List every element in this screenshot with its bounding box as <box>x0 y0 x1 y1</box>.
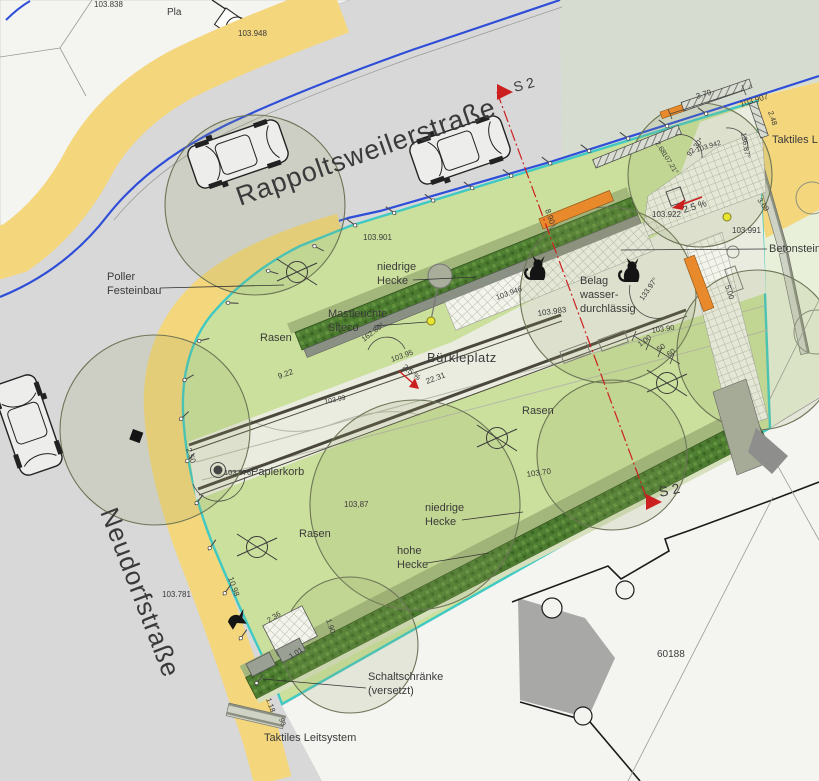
label-poller-line2: Festeinbau <box>107 285 161 297</box>
lawn-label-2: Rasen <box>522 405 554 417</box>
mast-light-1 <box>427 317 435 325</box>
building-notch-circle-3 <box>574 707 592 725</box>
site-plan-canvas: Rappoltsweilerstraße Neudorfstraße Bürkl… <box>0 0 819 781</box>
label-hohe-hecke-line1: hohe <box>397 545 421 557</box>
elev-103901: 103.901 <box>363 233 392 242</box>
label-hohe-hecke-line2: Hecke <box>397 559 428 571</box>
parcel-number: 60188 <box>657 649 685 660</box>
label-schaltschraenke-line1: Schaltschränke <box>368 671 443 683</box>
label-poller-line1: Poller <box>107 271 135 283</box>
building-notch-circle-2 <box>616 581 634 599</box>
label-papierkorb: Papierkorb <box>251 466 304 478</box>
lawn-label-3: Rasen <box>299 528 331 540</box>
building-notch-circle-1 <box>542 598 562 618</box>
elev-10387: 103,87 <box>344 500 369 509</box>
papierkorb-symbol <box>214 466 223 475</box>
elev-103781: 103.781 <box>162 590 191 599</box>
label-betonstein-right: Betonsteinp <box>769 243 819 255</box>
label-belag-line3: durchlässig <box>580 303 636 315</box>
elev-103948: 103.948 <box>238 29 267 38</box>
label-mastleuchte-line2: Siteco <box>328 322 359 334</box>
shrub-symbol <box>428 264 452 288</box>
elev-103976: 103.976 <box>224 468 251 477</box>
label-hecke-bottom-line1: niedrige <box>425 502 464 514</box>
label-taktiles-right: Taktiles L <box>772 134 818 146</box>
tree-canopy-2 <box>60 335 250 525</box>
label-mastleuchte-line1: Mastleuchte <box>328 308 387 320</box>
label-taktiles-bottom: Taktiles Leitsystem <box>264 732 356 744</box>
tree-canopy-8 <box>537 380 687 530</box>
elev-103922: 103.922 <box>652 210 681 219</box>
label-hecke-top-line1: niedrige <box>377 261 416 273</box>
label-hecke-bottom-line2: Hecke <box>425 516 456 528</box>
parcel-label-partial: Pla <box>167 7 182 18</box>
label-belag-line2: wasser- <box>579 289 619 301</box>
label-belag-line1: Belag <box>580 275 608 287</box>
label-hecke-top-line2: Hecke <box>377 275 408 287</box>
lawn-label-1: Rasen <box>260 332 292 344</box>
elev-103838: 103.838 <box>94 0 123 9</box>
elev-103991: 103.991 <box>732 226 761 235</box>
place-name-buerkleplatz: Bürkleplatz <box>427 350 497 365</box>
mast-light-2 <box>723 213 731 221</box>
site-plan-drawing: Rappoltsweilerstraße Neudorfstraße Bürkl… <box>0 0 819 781</box>
label-schaltschraenke-line2: (versetzt) <box>368 685 414 697</box>
